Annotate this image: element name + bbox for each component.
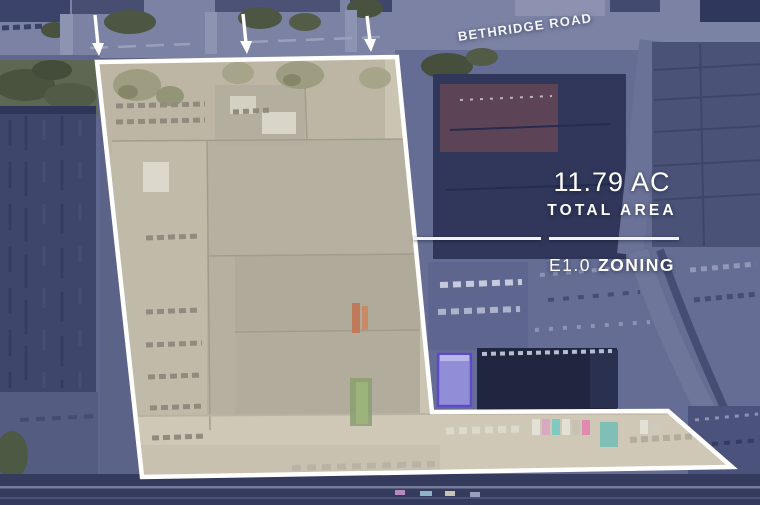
zoning-line: E1.0ZONING — [513, 255, 711, 275]
aerial-site-plan: BETHRIDGE ROAD 11.79 AC TOTAL AREA E1.0Z… — [0, 0, 760, 505]
site-stats: 11.79 AC TOTAL AREA E1.0ZONING — [513, 168, 711, 275]
stats-divider — [413, 237, 679, 240]
left-neighborhood — [0, 55, 100, 480]
bottom-rail-corridor — [0, 474, 760, 505]
divider-segment — [413, 237, 541, 240]
divider-segment — [549, 237, 679, 240]
zoning-value: E1.0 — [549, 255, 591, 275]
zoning-label: ZONING — [598, 255, 675, 275]
total-area-label: TOTAL AREA — [513, 202, 711, 219]
total-area-value: 11.79 AC — [513, 168, 711, 196]
